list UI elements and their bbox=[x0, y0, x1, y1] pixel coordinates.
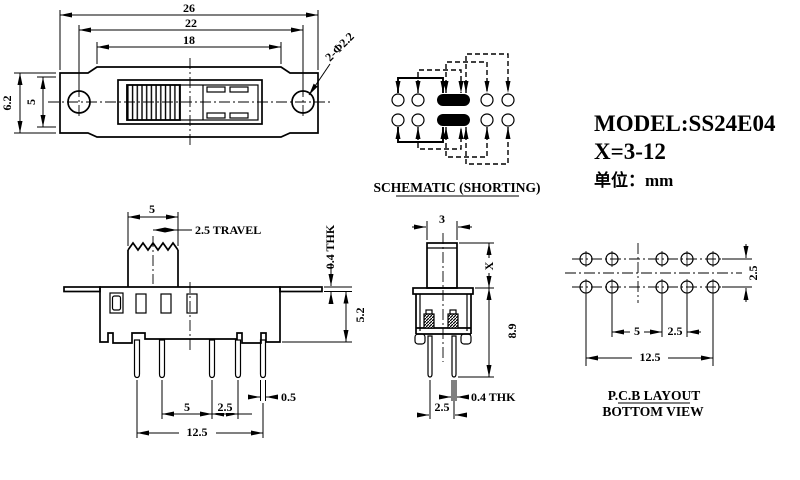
dim-pin-width-text: 0.5 bbox=[281, 390, 296, 404]
dim-side-total: 12.5 bbox=[137, 380, 263, 439]
dim-side-pitch: 5 2.5 bbox=[162, 380, 252, 419]
title-block: MODEL:SS24E04 X=3-12 单位：mm bbox=[594, 111, 776, 190]
dim-knob-5-text: 5 bbox=[149, 202, 155, 216]
dim-front-pin-thk: 0.4 THK bbox=[440, 380, 516, 404]
dim-front-pin-thk-text: 0.4 THK bbox=[471, 390, 516, 404]
dim-front-3-text: 3 bbox=[439, 212, 445, 226]
drawing-canvas: 26 22 18 6.2 5 bbox=[0, 0, 800, 480]
slider-knob-hatched bbox=[127, 85, 180, 120]
dim-6-2-text: 6.2 bbox=[0, 96, 14, 111]
schematic-wires-bottom bbox=[398, 127, 508, 164]
shorting-contact-row1 bbox=[437, 94, 470, 106]
dim-front-pitch: 2.5 bbox=[417, 380, 467, 419]
pcb-view: 2.5 5 2.5 12.5 P.C.B LAYOUT BOTTOM VIEW bbox=[565, 243, 760, 419]
dim-pin-width: 0.5 bbox=[248, 380, 296, 404]
dim-5-2: 5.2 bbox=[282, 292, 367, 343]
x-range: X=3-12 bbox=[594, 139, 666, 164]
dim-side-total-text: 12.5 bbox=[187, 425, 208, 439]
flange-right bbox=[280, 287, 322, 292]
dim-flange-thk-text: 0.4 THK bbox=[323, 224, 337, 269]
dim-travel-text: 2.5 TRAVEL bbox=[195, 223, 261, 237]
side-view: 5 2.5 TRAVEL 0.4 THK 5.2 0.5 bbox=[64, 202, 367, 439]
dim-front-x-text: X bbox=[482, 261, 496, 270]
front-foot-left bbox=[415, 334, 425, 344]
dim-pcb-total-text: 12.5 bbox=[640, 350, 661, 364]
dim-side-5-text: 5 bbox=[184, 400, 190, 414]
pcb-centerlines bbox=[565, 243, 742, 303]
dim-22-text: 22 bbox=[185, 16, 197, 30]
dim-pcb-5-text: 5 bbox=[634, 324, 640, 338]
technical-drawing-page: 26 22 18 6.2 5 bbox=[0, 0, 800, 480]
dim-18-text: 18 bbox=[183, 33, 195, 47]
dim-26-text: 26 bbox=[183, 1, 195, 15]
dim-side-25-text: 2.5 bbox=[218, 400, 233, 414]
dim-front-x: X bbox=[459, 243, 496, 288]
side-windows bbox=[110, 293, 197, 313]
front-foot-right bbox=[461, 334, 471, 344]
unit-note: 单位：mm bbox=[594, 170, 673, 190]
pcb-label-line2: BOTTOM VIEW bbox=[602, 404, 704, 419]
dim-pcb-rows-text: 2.5 bbox=[746, 266, 760, 281]
schematic-wires-top bbox=[398, 54, 508, 93]
dim-5-top-text: 5 bbox=[24, 99, 38, 105]
front-view: 3 X 8.9 0.4 THK 2. bbox=[412, 212, 519, 419]
shorting-contact-row2 bbox=[437, 114, 470, 126]
schematic-view: SCHEMATIC (SHORTING) bbox=[374, 54, 541, 196]
flange-left bbox=[64, 287, 100, 292]
dim-flange-thk: 0.4 THK bbox=[323, 224, 352, 303]
pcb-label-line1: P.C.B LAYOUT bbox=[608, 388, 700, 403]
dim-front-3: 3 bbox=[412, 212, 472, 240]
dim-5-2-text: 5.2 bbox=[353, 308, 367, 323]
dim-22: 22 bbox=[79, 16, 303, 95]
front-contacts bbox=[424, 310, 458, 328]
callout-holes: 2-Φ2.2 bbox=[309, 30, 357, 95]
dim-18: 18 bbox=[97, 33, 281, 64]
top-view: 26 22 18 6.2 5 bbox=[0, 1, 357, 146]
front-pins bbox=[428, 336, 456, 377]
callout-holes-text: 2-Φ2.2 bbox=[322, 30, 357, 65]
dim-travel: 2.5 TRAVEL bbox=[153, 223, 261, 237]
dim-front-8-9-text: 8.9 bbox=[505, 324, 519, 339]
contact-slots bbox=[207, 87, 248, 118]
model-number: MODEL:SS24E04 bbox=[594, 111, 776, 136]
side-pins bbox=[135, 340, 266, 378]
dim-pcb-25-text: 2.5 bbox=[668, 324, 683, 338]
dim-pcb-total: 12.5 bbox=[586, 350, 713, 364]
dim-front-pitch-text: 2.5 bbox=[435, 400, 450, 414]
front-knob bbox=[427, 243, 457, 288]
schematic-label: SCHEMATIC (SHORTING) bbox=[374, 180, 541, 195]
